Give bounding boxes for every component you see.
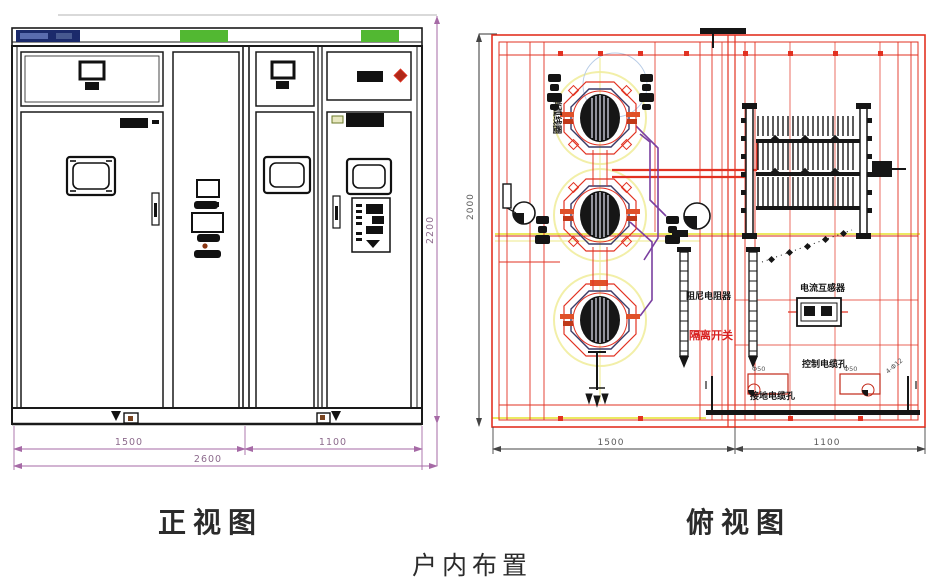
top-dim-left: 1500	[598, 438, 625, 448]
top-view-drawing: 2000	[460, 0, 944, 492]
front-view-drawing: 2200	[0, 0, 460, 492]
hole-note-left: Φ50	[752, 365, 765, 373]
door-label	[120, 118, 148, 128]
right-left-cabinet	[256, 46, 322, 408]
coil-label: 消弧线圈	[551, 98, 563, 134]
front-view-caption: 正视图	[158, 501, 263, 541]
top-dim-depth: 2000	[466, 193, 476, 220]
hole-note-right: Φ50	[844, 365, 857, 373]
control-cable-hole-label: 控制电缆孔	[802, 358, 847, 370]
cable-tray-ladders	[677, 247, 760, 368]
arc-suppression-coils	[560, 82, 640, 356]
door-handle[interactable]	[152, 193, 159, 225]
front-dim-right: 1100	[319, 437, 347, 448]
damping-resistor-label: 阻尼电阻器	[686, 290, 732, 302]
rating-plate	[352, 198, 390, 252]
damping-resistor-bank	[741, 103, 906, 263]
ground-cable-hole-label: 接地电缆孔	[750, 390, 795, 402]
current-transformer-label: 电流互感器	[800, 282, 846, 294]
top-dim-right: 1100	[814, 438, 841, 448]
disconnect-switch-label: 隔离开关	[689, 328, 733, 342]
page-title: 户内布置	[0, 546, 944, 582]
front-dim-total: 2600	[194, 454, 222, 465]
cabinet-top-strip	[12, 28, 422, 46]
cabinet-base	[12, 408, 422, 424]
front-dim-left: 1500	[115, 437, 143, 448]
left-cabinet	[21, 52, 163, 408]
green-strip-left	[180, 30, 228, 42]
cable-hole-boxes	[700, 28, 920, 415]
door-handle[interactable]	[333, 196, 340, 228]
grounding-fork-icon	[586, 352, 608, 406]
inspection-window	[347, 159, 391, 194]
top-width-dimensions: 1500 1100	[493, 427, 925, 454]
front-width-dimensions: 1500 1100 2600	[14, 426, 437, 470]
drawing-sheet: 2200	[0, 0, 944, 582]
inspection-window	[67, 157, 115, 195]
middle-instrument-column	[173, 52, 239, 408]
green-strip-right	[361, 30, 399, 42]
top-view-caption: 俯视图	[686, 501, 791, 541]
front-dim-height: 2200	[425, 216, 436, 244]
inspection-window	[264, 157, 310, 193]
mounting-note: 4-Φ12	[884, 357, 904, 376]
current-transformer-box	[788, 298, 848, 326]
